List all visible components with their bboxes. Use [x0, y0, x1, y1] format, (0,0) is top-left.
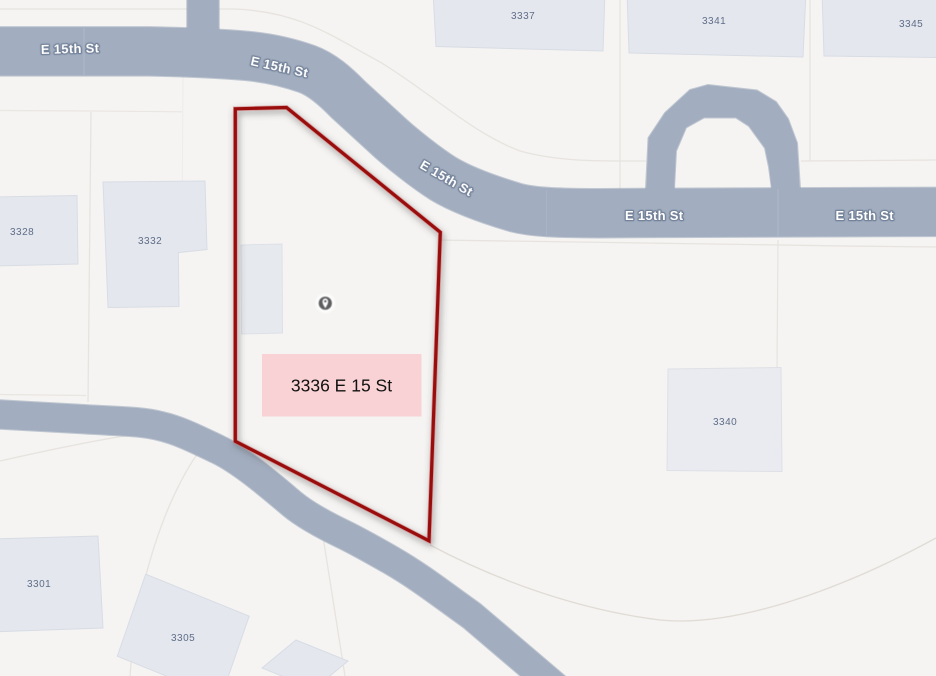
- svg-text:3340: 3340: [713, 417, 737, 428]
- svg-text:3328: 3328: [10, 227, 34, 238]
- svg-text:3341: 3341: [702, 16, 726, 27]
- svg-text:3336 E 15 St: 3336 E 15 St: [291, 376, 392, 396]
- svg-text:E 15th St: E 15th St: [836, 208, 895, 223]
- svg-text:3301: 3301: [27, 579, 51, 590]
- svg-text:3345: 3345: [899, 19, 923, 30]
- svg-text:3305: 3305: [171, 633, 195, 644]
- svg-text:E 15th St: E 15th St: [625, 208, 684, 223]
- svg-text:E 15th St: E 15th St: [41, 40, 100, 57]
- svg-text:3337: 3337: [511, 11, 535, 22]
- svg-text:3332: 3332: [138, 236, 162, 247]
